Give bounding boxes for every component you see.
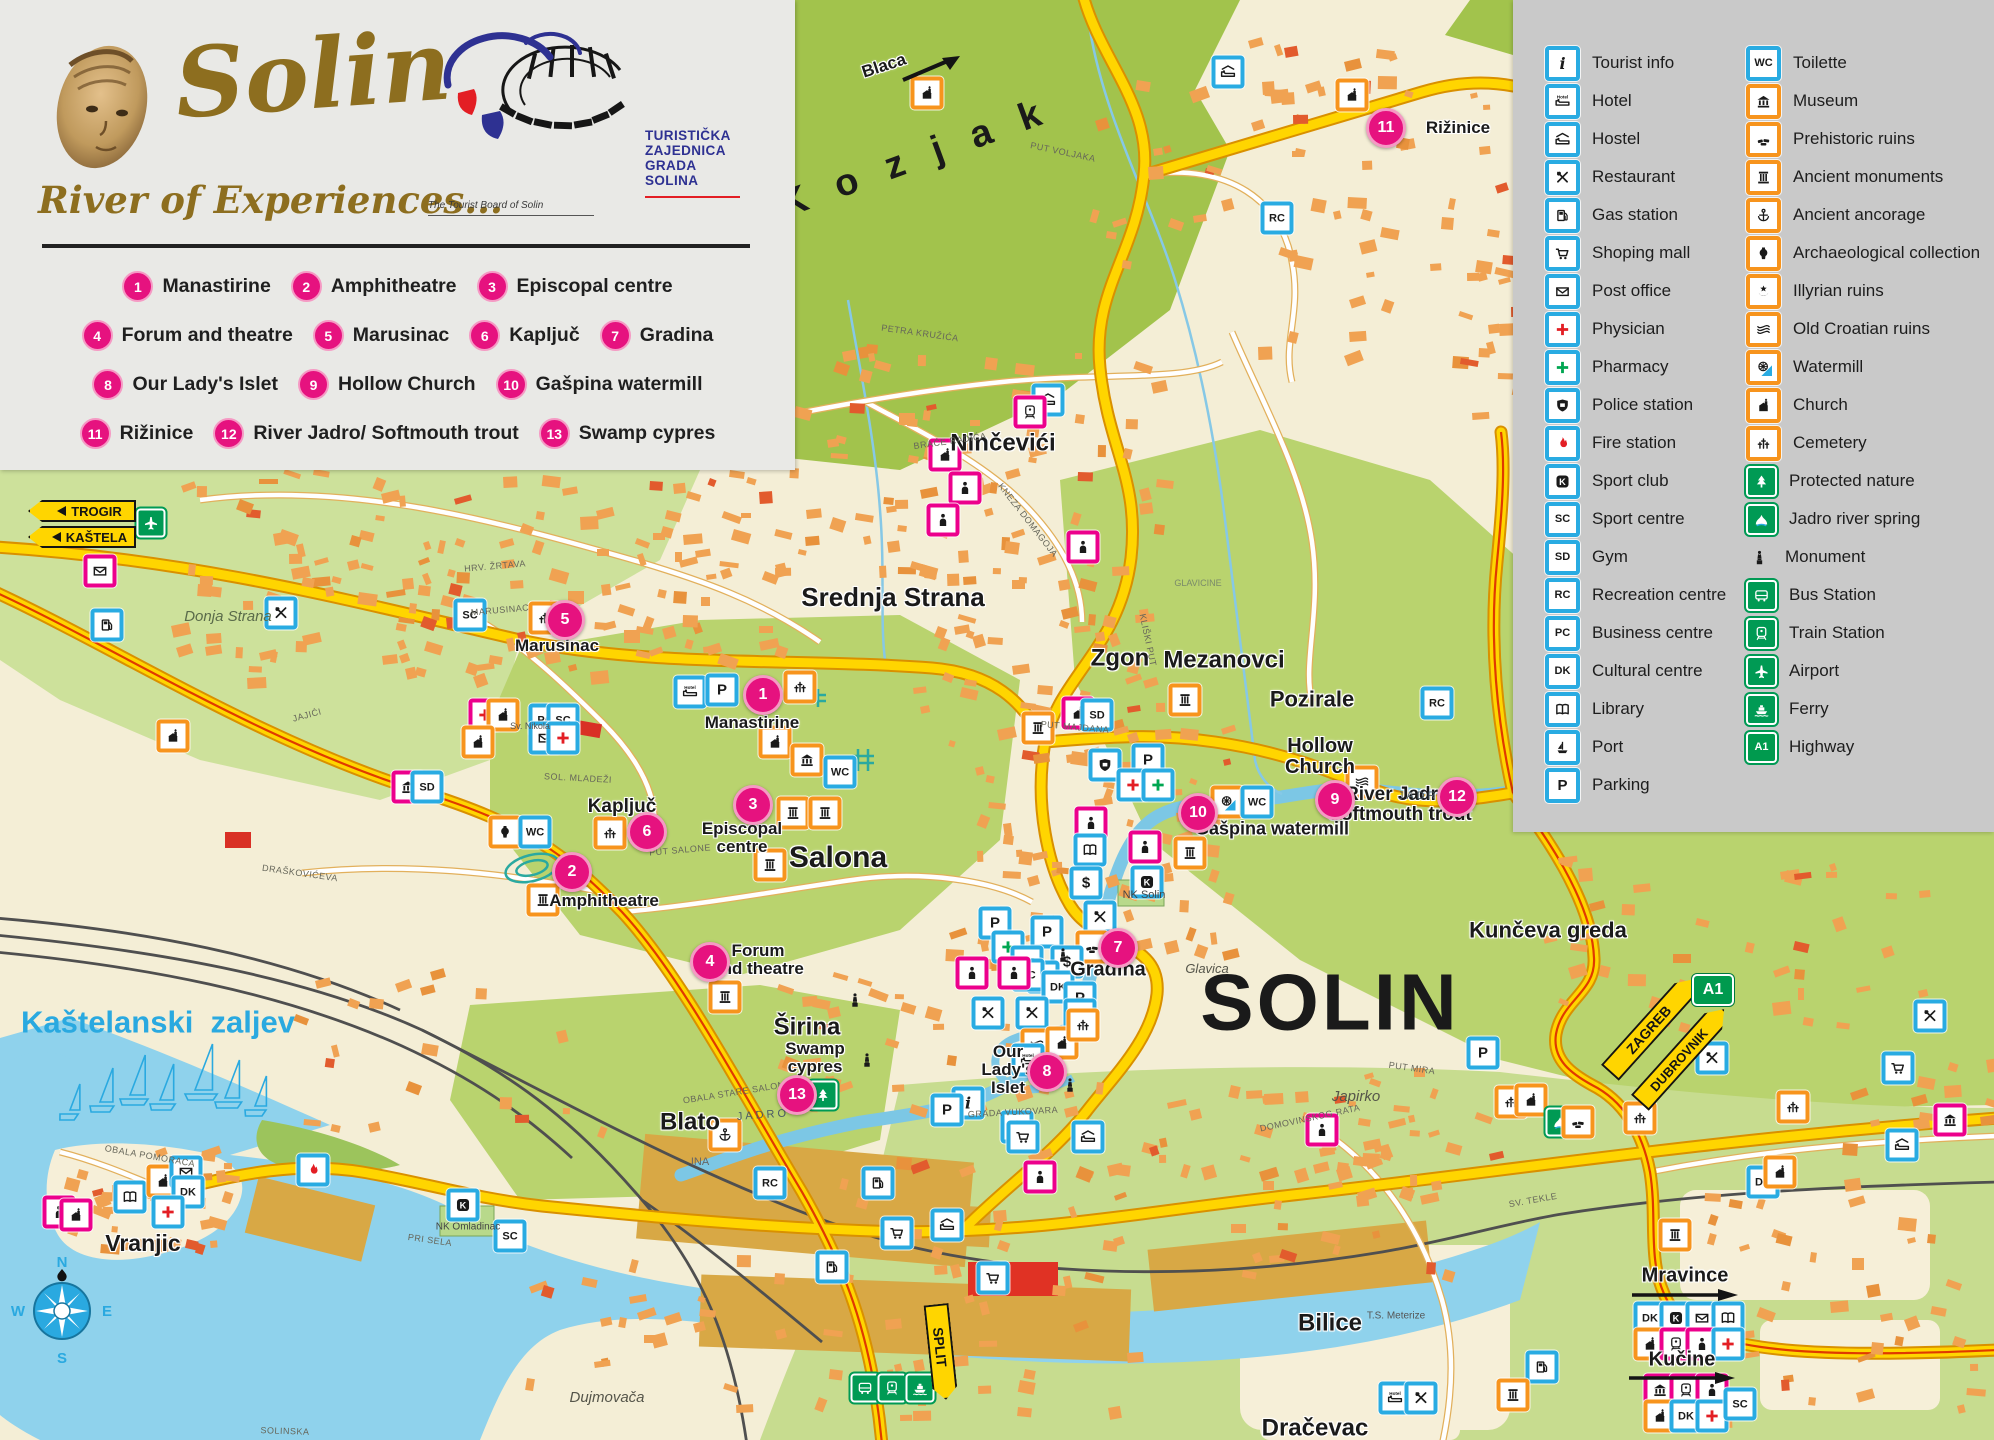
- attraction-item: 6 Kapljuč: [469, 320, 579, 351]
- parking-icon: P: [706, 674, 739, 707]
- post-icon: [1545, 274, 1580, 309]
- rc-icon: RC: [1261, 202, 1294, 235]
- attraction-number: 5: [313, 320, 344, 351]
- map-place-label: Blato: [660, 1109, 720, 1134]
- monument-icon: [1746, 544, 1773, 571]
- church-icon: [1336, 79, 1369, 112]
- legend-item-label: Shoping mall: [1592, 243, 1690, 263]
- gas-icon: [862, 1167, 895, 1200]
- church-icon: [1764, 1156, 1797, 1189]
- attraction-label: Swamp cypres: [579, 422, 716, 445]
- map-place-label: Swamp cypres: [785, 1040, 845, 1076]
- wc-icon: WC: [824, 756, 857, 789]
- person-icon: [998, 957, 1031, 990]
- legend-item: Monument: [1746, 538, 1980, 576]
- attraction-label: Forum and theatre: [122, 324, 293, 347]
- svg-text:K: K: [460, 1201, 467, 1211]
- attraction-number: 11: [80, 418, 111, 449]
- map-place-label: Donja Strana: [184, 609, 272, 625]
- attraction-marker-10: 10: [1178, 793, 1218, 833]
- pharmacy-icon: [1142, 769, 1175, 802]
- legend-item: Port: [1545, 728, 1726, 766]
- legend-panel: iTourist infoHotelHotelHostelRestaurantG…: [1513, 0, 1994, 832]
- legend-item-label: Pharmacy: [1592, 357, 1669, 377]
- attraction-number: 1: [122, 271, 153, 302]
- hostel-icon: [1212, 56, 1245, 89]
- legend-item: Hostel: [1545, 120, 1726, 158]
- cemetery-icon: [1777, 1091, 1810, 1124]
- legend-item: HotelHotel: [1545, 82, 1726, 120]
- map-place-label: Kučine: [1649, 1349, 1716, 1370]
- legend-item: Ancient ancorage: [1746, 196, 1980, 234]
- physician-icon: [1712, 1328, 1745, 1361]
- legend-item: DKCultural centre: [1545, 652, 1726, 690]
- attraction-label: Rižinice: [120, 422, 194, 445]
- hostel-icon: [1072, 1121, 1105, 1154]
- rc-icon: RC: [1421, 687, 1454, 720]
- legend-item-label: Tourist info: [1592, 53, 1674, 73]
- attraction-number: 2: [291, 271, 322, 302]
- attraction-item: 12 River Jadro/ Softmouth trout: [213, 418, 518, 449]
- attraction-item: 5 Marusinac: [313, 320, 449, 351]
- map-place-label: Kaštelanski zaljev: [21, 1007, 295, 1040]
- map-place-label: INA: [691, 1157, 709, 1169]
- compass-w: W: [11, 1303, 26, 1320]
- hostel-icon: [1545, 122, 1580, 157]
- train-icon: [1746, 618, 1777, 649]
- person-icon: [1024, 1161, 1057, 1194]
- map-place-label: Gašpina watermill: [1195, 819, 1349, 838]
- map-place-label: Bilice: [1298, 1310, 1362, 1335]
- legend-item-label: Bus Station: [1789, 585, 1876, 605]
- airport-icon: [137, 509, 166, 538]
- anchor-icon: [1746, 198, 1781, 233]
- legend-item-label: Post office: [1592, 281, 1671, 301]
- map-title: Solin: [171, 9, 454, 141]
- wc-icon: WC: [519, 816, 552, 849]
- map-place-label: SOLIN: [1200, 961, 1459, 1046]
- illyrian-icon: [1746, 274, 1781, 309]
- legend-item-label: Ancient monuments: [1793, 167, 1943, 187]
- sd-icon: SD: [1545, 540, 1580, 575]
- attraction-item: 8 Our Lady's Islet: [92, 369, 278, 400]
- legend-item-label: Hostel: [1592, 129, 1640, 149]
- dollar-icon: $: [1070, 867, 1103, 900]
- pc-icon: PC: [1545, 616, 1580, 651]
- road-sign-trogir: TROGIR: [28, 500, 136, 522]
- attraction-marker-11: 11: [1366, 108, 1406, 148]
- legend-item: Post office: [1545, 272, 1726, 310]
- sculpture-head-image: [30, 25, 180, 190]
- blaca-direction-arrow: [898, 48, 968, 88]
- gas-icon: [816, 1251, 849, 1284]
- church-icon: [462, 726, 495, 759]
- legend-item-label: Protected nature: [1789, 471, 1915, 491]
- ferry-icon: [1746, 694, 1777, 725]
- spring-icon: [1746, 504, 1777, 535]
- train-icon: [878, 1374, 907, 1403]
- column-icon: [709, 981, 742, 1014]
- map-place-label: Manastirine: [705, 714, 799, 732]
- legend-item-label: Business centre: [1592, 623, 1713, 643]
- map-place-label: GLAVICINE: [1174, 579, 1221, 589]
- attraction-label: Hollow Church: [338, 373, 476, 396]
- column-icon: [809, 797, 842, 830]
- attraction-marker-6: 6: [627, 812, 667, 852]
- police-icon: [1545, 388, 1580, 423]
- sc-icon: SC: [1724, 1388, 1757, 1421]
- library-icon: [1074, 834, 1107, 867]
- tourist-board-caption: The Tourist Board of Solin: [428, 200, 598, 211]
- attraction-marker-13: 13: [777, 1075, 817, 1115]
- fire-icon: [1545, 426, 1580, 461]
- legend-item: Illyrian ruins: [1746, 272, 1980, 310]
- attraction-item: 3 Episcopal centre: [477, 271, 673, 302]
- attraction-row: 11 Rižinice12 River Jadro/ Softmouth tro…: [20, 409, 775, 458]
- svg-text:Hotel: Hotel: [1389, 1391, 1400, 1396]
- attraction-marker-8: 8: [1027, 1052, 1067, 1092]
- legend-item: Archaeological collection: [1746, 234, 1980, 272]
- cart-icon: [1007, 1121, 1040, 1154]
- svg-text:Hotel: Hotel: [1557, 94, 1568, 99]
- legend-item-label: Restaurant: [1592, 167, 1675, 187]
- museum-icon: [1746, 84, 1781, 119]
- legend-item: Bus Station: [1746, 576, 1980, 614]
- street-label: SOLINSKA: [260, 1425, 309, 1437]
- attraction-row: 4 Forum and theatre5 Marusinac6 Kapljuč7…: [20, 311, 775, 360]
- attraction-number: 7: [600, 320, 631, 351]
- attraction-item: 10 Gašpina watermill: [496, 369, 703, 400]
- legend-item: Church: [1746, 386, 1980, 424]
- oldcroat-icon: [1746, 312, 1781, 347]
- legend-item: Shoping mall: [1545, 234, 1726, 272]
- svg-text:K: K: [1559, 477, 1566, 487]
- map-place-label: Srednja Strana: [801, 584, 985, 612]
- i-icon: i: [1545, 46, 1580, 81]
- train-icon: [1014, 396, 1047, 429]
- cart-icon: [977, 1262, 1010, 1295]
- sign-text: KAŠTELA: [66, 530, 127, 545]
- attraction-label: Amphitheatre: [331, 275, 457, 298]
- solin-tourist-map: RCRCSCHotelPWCWCPCSCSDP$KWCSDPPWC$PCDKPP…: [0, 0, 1994, 1440]
- sign-text: TROGIR: [71, 504, 122, 519]
- attraction-marker-2: 2: [552, 852, 592, 892]
- attraction-item: 1 Manastirine: [122, 271, 270, 302]
- legend-item: Train Station: [1746, 614, 1980, 652]
- attraction-marker-12: 12: [1437, 777, 1477, 817]
- cart-icon: [1882, 1052, 1915, 1085]
- attraction-number: 8: [92, 369, 123, 400]
- attraction-label: River Jadro/ Softmouth trout: [253, 422, 518, 445]
- physician-icon: [152, 1196, 185, 1229]
- legend-item-label: Monument: [1785, 547, 1865, 567]
- attraction-number: 4: [82, 320, 113, 351]
- gas-icon: [91, 609, 124, 642]
- cemetery-icon: [594, 817, 627, 850]
- vase-icon: [489, 816, 522, 849]
- legend-item: Watermill: [1746, 348, 1980, 386]
- monument-icon: [843, 988, 868, 1013]
- sportclub-icon: K: [1545, 464, 1580, 499]
- svg-text:K: K: [1144, 878, 1151, 888]
- wc-icon: WC: [1746, 46, 1781, 81]
- gas-icon: [1545, 198, 1580, 233]
- bus-icon: [1746, 580, 1777, 611]
- fire-icon: [297, 1154, 330, 1187]
- a1-icon: A1: [1746, 732, 1777, 763]
- legend-item-label: Highway: [1789, 737, 1854, 757]
- church-icon: [60, 1199, 93, 1232]
- attraction-list: 1 Manastirine2 Amphitheatre3 Episcopal c…: [20, 262, 775, 458]
- legend-item: RCRecreation centre: [1545, 576, 1726, 614]
- watermill-icon: [1746, 350, 1781, 385]
- column-icon: [1746, 160, 1781, 195]
- attraction-row: 1 Manastirine2 Amphitheatre3 Episcopal c…: [20, 262, 775, 311]
- church-icon: [157, 720, 190, 753]
- mravince-direction-arrow: [1630, 1288, 1740, 1302]
- caption-rule: [428, 215, 594, 216]
- legend-item-label: Train Station: [1789, 623, 1885, 643]
- attraction-item: 7 Gradina: [600, 320, 714, 351]
- legend-item-label: Museum: [1793, 91, 1858, 111]
- legend-item-label: Toilette: [1793, 53, 1847, 73]
- map-place-label: Amphitheatre: [549, 892, 659, 910]
- monument-icon: [855, 1048, 880, 1073]
- legend-item: Old Croatian ruins: [1746, 310, 1980, 348]
- map-place-label: Pozirale: [1270, 687, 1354, 710]
- legend-item: Ferry: [1746, 690, 1980, 728]
- map-place-label: Mezanovci: [1163, 647, 1284, 672]
- legend-item-label: Cultural centre: [1592, 661, 1703, 681]
- tourist-board-name: TURISTIČKA ZAJEDNICA GRADA SOLINA: [645, 128, 731, 188]
- attraction-item: 9 Hollow Church: [298, 369, 476, 400]
- rc-icon: RC: [754, 1167, 787, 1200]
- attraction-label: Marusinac: [353, 324, 449, 347]
- map-place-label: Glavica: [1185, 962, 1228, 976]
- legend-item-label: Cemetery: [1793, 433, 1867, 453]
- museum-icon: [791, 744, 824, 777]
- attraction-marker-3: 3: [733, 785, 773, 825]
- restaurant-icon: [1016, 997, 1049, 1030]
- attraction-marker-1: 1: [743, 675, 783, 715]
- museum-icon: [1934, 1104, 1967, 1137]
- column-icon: [1659, 1219, 1692, 1252]
- map-place-label: Mravince: [1642, 1265, 1729, 1286]
- cemetery-icon: [1746, 426, 1781, 461]
- bus-icon: [851, 1374, 880, 1403]
- map-place-label: Dujmovača: [569, 1390, 644, 1406]
- legend-item: SDGym: [1545, 538, 1726, 576]
- church-icon: [1746, 388, 1781, 423]
- legend-item: PParking: [1545, 766, 1726, 804]
- legend-item-label: Illyrian ruins: [1793, 281, 1884, 301]
- road-sign-kastela: KAŠTELA: [28, 526, 136, 548]
- legend-item-label: Archaeological collection: [1793, 243, 1980, 263]
- sd-icon: SD: [411, 771, 444, 804]
- map-place-label: Salona: [789, 842, 887, 874]
- attraction-label: Gradina: [640, 324, 714, 347]
- attraction-label: Kapljuč: [509, 324, 579, 347]
- map-place-label: Hollow Church: [1285, 736, 1355, 778]
- prehistoric-icon: [1562, 1106, 1595, 1139]
- parking-icon: P: [1545, 768, 1580, 803]
- attraction-marker-7: 7: [1098, 928, 1138, 968]
- legend-item-label: Gas station: [1592, 205, 1678, 225]
- cemetery-icon: [1067, 1009, 1100, 1042]
- title-divider: [42, 244, 750, 248]
- attraction-marker-4: 4: [690, 942, 730, 982]
- attraction-number: 3: [477, 271, 508, 302]
- restaurant-icon: [1914, 1000, 1947, 1033]
- attraction-marker-9: 9: [1315, 780, 1355, 820]
- pharmacy-icon: [1545, 350, 1580, 385]
- map-place-label: Sv. Nikola: [510, 722, 550, 732]
- map-place-label: Dračevac: [1262, 1415, 1369, 1440]
- attraction-label: Our Lady's Islet: [132, 373, 278, 396]
- legend-item: Library: [1545, 690, 1726, 728]
- attraction-number: 9: [298, 369, 329, 400]
- attraction-marker-5: 5: [545, 600, 585, 640]
- attraction-label: Episcopal centre: [517, 275, 673, 298]
- map-place-label: Vranjic: [105, 1231, 180, 1255]
- map-place-label: Marusinac: [515, 637, 599, 655]
- legend-column-1: iTourist infoHotelHotelHostelRestaurantG…: [1545, 44, 1726, 804]
- legend-item-label: Library: [1592, 699, 1644, 719]
- cart-icon: [1545, 236, 1580, 271]
- legend-item-label: Old Croatian ruins: [1793, 319, 1930, 339]
- map-place-label: NK Solin: [1123, 890, 1166, 902]
- legend-item: Ancient monuments: [1746, 158, 1980, 196]
- person-icon: [956, 957, 989, 990]
- legend-item-label: Physician: [1592, 319, 1665, 339]
- attraction-item: 4 Forum and theatre: [82, 320, 293, 351]
- map-place-label: Kunčeva greda: [1469, 918, 1627, 941]
- sc-icon: SC: [1545, 502, 1580, 537]
- hotel-icon: Hotel: [1545, 84, 1580, 119]
- legend-item: Fire station: [1545, 424, 1726, 462]
- logo-underline: [645, 196, 740, 198]
- attraction-number: 12: [213, 418, 244, 449]
- map-place-label: Širina: [774, 1014, 841, 1039]
- attraction-item: 2 Amphitheatre: [291, 271, 457, 302]
- dk-icon: DK: [1545, 654, 1580, 689]
- map-place-label: T.S. Meterize: [1367, 1312, 1425, 1323]
- rc-icon: RC: [1545, 578, 1580, 613]
- legend-item-label: Ferry: [1789, 699, 1829, 719]
- restaurant-icon: [972, 997, 1005, 1030]
- legend-item-label: Recreation centre: [1592, 585, 1726, 605]
- prehistoric-icon: [1746, 122, 1781, 157]
- attraction-label: Gašpina watermill: [536, 373, 703, 396]
- legend-item-label: Parking: [1592, 775, 1650, 795]
- svg-text:K: K: [1673, 1314, 1680, 1324]
- legend-item-label: Church: [1793, 395, 1848, 415]
- compass-rose: N S W E: [10, 1255, 114, 1367]
- attraction-item: 13 Swamp cypres: [539, 418, 716, 449]
- attraction-row: 8 Our Lady's Islet9 Hollow Church10 Gašp…: [20, 360, 775, 409]
- hotel-icon: Hotel: [674, 676, 707, 709]
- map-place-label: Rižinice: [1426, 119, 1490, 137]
- legend-item: Airport: [1746, 652, 1980, 690]
- legend-item-label: Port: [1592, 737, 1623, 757]
- legend-item: Pharmacy: [1545, 348, 1726, 386]
- cart-icon: [881, 1217, 914, 1250]
- gas-icon: [1526, 1351, 1559, 1384]
- legend-item: SCSport centre: [1545, 500, 1726, 538]
- map-place-label: NK Omladinac: [436, 1223, 500, 1234]
- legend-item: Police station: [1545, 386, 1726, 424]
- legend-item: Physician: [1545, 310, 1726, 348]
- legend-item: Jadro river spring: [1746, 500, 1980, 538]
- legend-item: PCBusiness centre: [1545, 614, 1726, 652]
- attraction-item: 11 Rižinice: [80, 418, 194, 449]
- cemetery-icon: [784, 671, 817, 704]
- attraction-number: 10: [496, 369, 527, 400]
- legend-item-label: Jadro river spring: [1789, 509, 1920, 529]
- legend-item-label: Hotel: [1592, 91, 1632, 111]
- person-icon: [927, 504, 960, 537]
- column-icon: [1169, 684, 1202, 717]
- sign-text: SPLIT: [930, 1326, 950, 1367]
- post-icon: [84, 555, 117, 588]
- physician-icon: [547, 722, 580, 755]
- parking-icon: P: [931, 1094, 964, 1127]
- sailboats-drawing: [50, 1040, 280, 1150]
- port-icon: [1545, 730, 1580, 765]
- map-place-label: Zgon: [1091, 645, 1150, 670]
- vase-icon: [1746, 236, 1781, 271]
- map-place-label: Episcopal centre: [702, 820, 782, 856]
- compass-n: N: [57, 1255, 68, 1271]
- legend-item: WCToilette: [1746, 44, 1980, 82]
- legend-item-label: Fire station: [1592, 433, 1676, 453]
- title-box: Solin River of Experiences...: [0, 0, 795, 470]
- person-icon: [949, 472, 982, 505]
- person-icon: [1129, 831, 1162, 864]
- attraction-label: Manastirine: [162, 275, 270, 298]
- hostel-icon: [1886, 1129, 1919, 1162]
- sportclub-icon: K: [447, 1189, 480, 1222]
- compass-e: E: [102, 1303, 112, 1320]
- legend-item: Gas station: [1545, 196, 1726, 234]
- kucine-direction-arrow: [1627, 1371, 1737, 1385]
- parking-icon: P: [1467, 1037, 1500, 1070]
- attraction-number: 6: [469, 320, 500, 351]
- legend-item-label: Ancient ancorage: [1793, 205, 1925, 225]
- legend-item: Museum: [1746, 82, 1980, 120]
- wc-icon: WC: [1241, 786, 1274, 819]
- hostel-icon: [931, 1209, 964, 1242]
- legend-item: iTourist info: [1545, 44, 1726, 82]
- legend-item: Protected nature: [1746, 462, 1980, 500]
- tourist-board-logo: [430, 15, 760, 225]
- column-icon: [1497, 1379, 1530, 1412]
- column-icon: [1174, 837, 1207, 870]
- compass-s: S: [57, 1350, 67, 1367]
- legend-item-label: Gym: [1592, 547, 1628, 567]
- person-icon: [1067, 531, 1100, 564]
- legend-item-label: Sport centre: [1592, 509, 1685, 529]
- a1-highway-badge: A1: [1692, 974, 1734, 1006]
- legend-item: A1Highway: [1746, 728, 1980, 766]
- airport-icon: [1746, 656, 1777, 687]
- library-icon: [1545, 692, 1580, 727]
- legend-item: Prehistoric ruins: [1746, 120, 1980, 158]
- restaurant-icon: [1405, 1382, 1438, 1415]
- restaurant-icon: [1545, 160, 1580, 195]
- legend-item-label: Airport: [1789, 661, 1839, 681]
- attraction-number: 13: [539, 418, 570, 449]
